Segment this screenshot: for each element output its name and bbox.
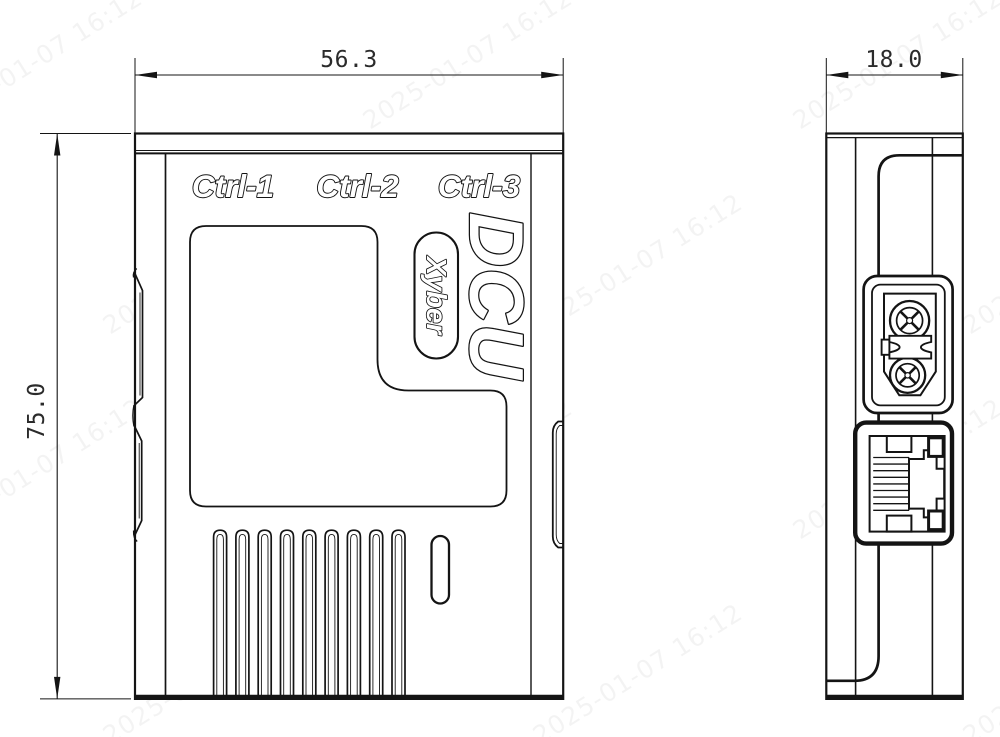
front-view: Ctrl-1 Ctrl-2 Ctrl-3 DCU Xyber: [133, 134, 563, 699]
dim-width-arrow-right: [541, 72, 563, 78]
vent-slot: [236, 530, 249, 698]
dim-height-arrow-top: [54, 134, 60, 156]
vent-slot: [325, 530, 338, 698]
side-outline: [826, 134, 963, 699]
watermark-text: 2025-01-07 16:12: [958, 598, 1000, 737]
watermark-text: 2025-01-07 16:12: [358, 0, 578, 135]
watermark-text: 2025-01-07 16:12: [958, 188, 1000, 340]
dim-height-arrow-bottom: [54, 677, 60, 699]
vent-slot: [392, 530, 405, 698]
vent-slot: [214, 530, 227, 698]
dim-height-label: 75.0: [24, 382, 50, 439]
vent-slot: [281, 530, 294, 698]
vent-slot: [370, 530, 383, 698]
dim-width-label: 56.3: [320, 47, 377, 73]
vent-slots: [214, 530, 405, 698]
dim-width: 56.3: [135, 47, 563, 147]
bowtie-tab: [882, 340, 890, 355]
vent-slot: [347, 530, 360, 698]
power-terminal-bottom-icon: [890, 358, 925, 393]
dim-width-arrow-left: [135, 72, 157, 78]
vent-slot: [258, 530, 271, 698]
watermark-text: 2025-01-07 16:12: [0, 393, 148, 545]
drawing-svg: 2025-01-07 16:122025-01-07 16:122025-01-…: [0, 0, 1000, 737]
dim-depth-label: 18.0: [865, 47, 922, 73]
terminal-hub: [905, 373, 910, 378]
power-terminal-top-icon: [890, 301, 929, 340]
vent-slot: [303, 530, 316, 698]
technical-drawing-page: 2025-01-07 16:122025-01-07 16:122025-01-…: [0, 0, 1000, 737]
port-label-ctrl-3: Ctrl-3: [438, 168, 521, 204]
rj45-contact-block-top: [929, 438, 944, 457]
terminal-hub: [907, 318, 913, 324]
port-label-ctrl-1: Ctrl-1: [192, 168, 274, 204]
power-connector-icon: [864, 276, 953, 413]
brand-logo-text: Xyber: [421, 255, 452, 337]
watermark-text: 2025-01-07 16:12: [0, 0, 148, 135]
ethernet-port-icon: [855, 423, 952, 544]
dim-depth-arrow-left: [826, 72, 848, 78]
side-view: [826, 134, 963, 699]
port-label-ctrl-2: Ctrl-2: [316, 168, 399, 204]
oval-slot: [432, 536, 450, 604]
rj45-contact-block-bottom: [929, 511, 944, 530]
dim-depth-arrow-right: [941, 72, 963, 78]
product-logo-text: DCU: [453, 212, 538, 381]
